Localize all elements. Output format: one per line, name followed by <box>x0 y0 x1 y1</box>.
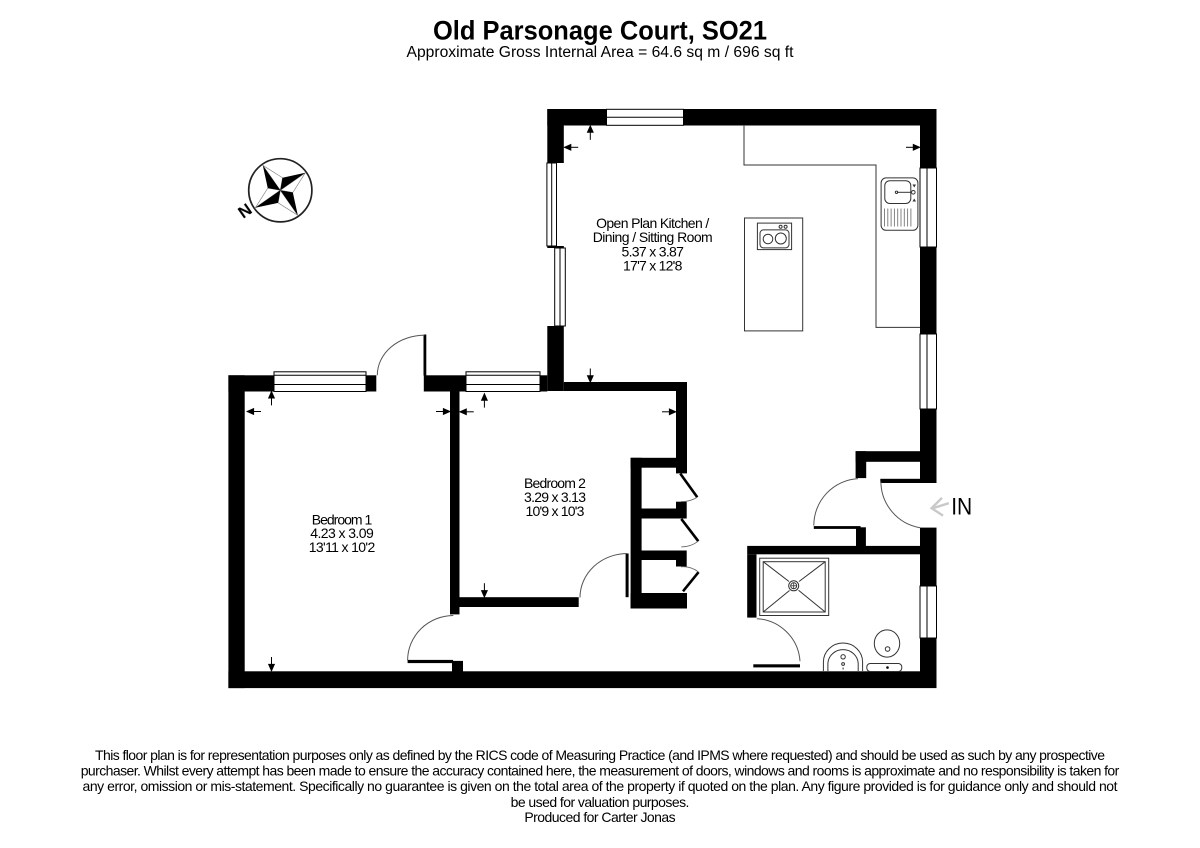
svg-text:any error, omission or mis-sta: any error, omission or mis-statement. Sp… <box>83 778 1118 794</box>
svg-text:This floor plan is for represe: This floor plan is for representation pu… <box>95 747 1105 763</box>
svg-text:Old Parsonage Court, SO21: Old Parsonage Court, SO21 <box>433 15 767 45</box>
svg-text:be used for valuation purposes: be used for valuation purposes. <box>511 794 690 810</box>
svg-text:IN: IN <box>951 494 972 521</box>
svg-text:17'7 x 12'8: 17'7 x 12'8 <box>623 258 683 274</box>
svg-text:13'11 x 10'2: 13'11 x 10'2 <box>309 539 376 555</box>
svg-text:Produced for Carter Jonas: Produced for Carter Jonas <box>524 809 675 825</box>
svg-text:purchaser. Whilst every attemp: purchaser. Whilst every attempt has been… <box>81 763 1120 779</box>
svg-text:10'9 x 10'3: 10'9 x 10'3 <box>526 503 585 519</box>
svg-text:Approximate Gross Internal Are: Approximate Gross Internal Area = 64.6 s… <box>407 44 795 61</box>
